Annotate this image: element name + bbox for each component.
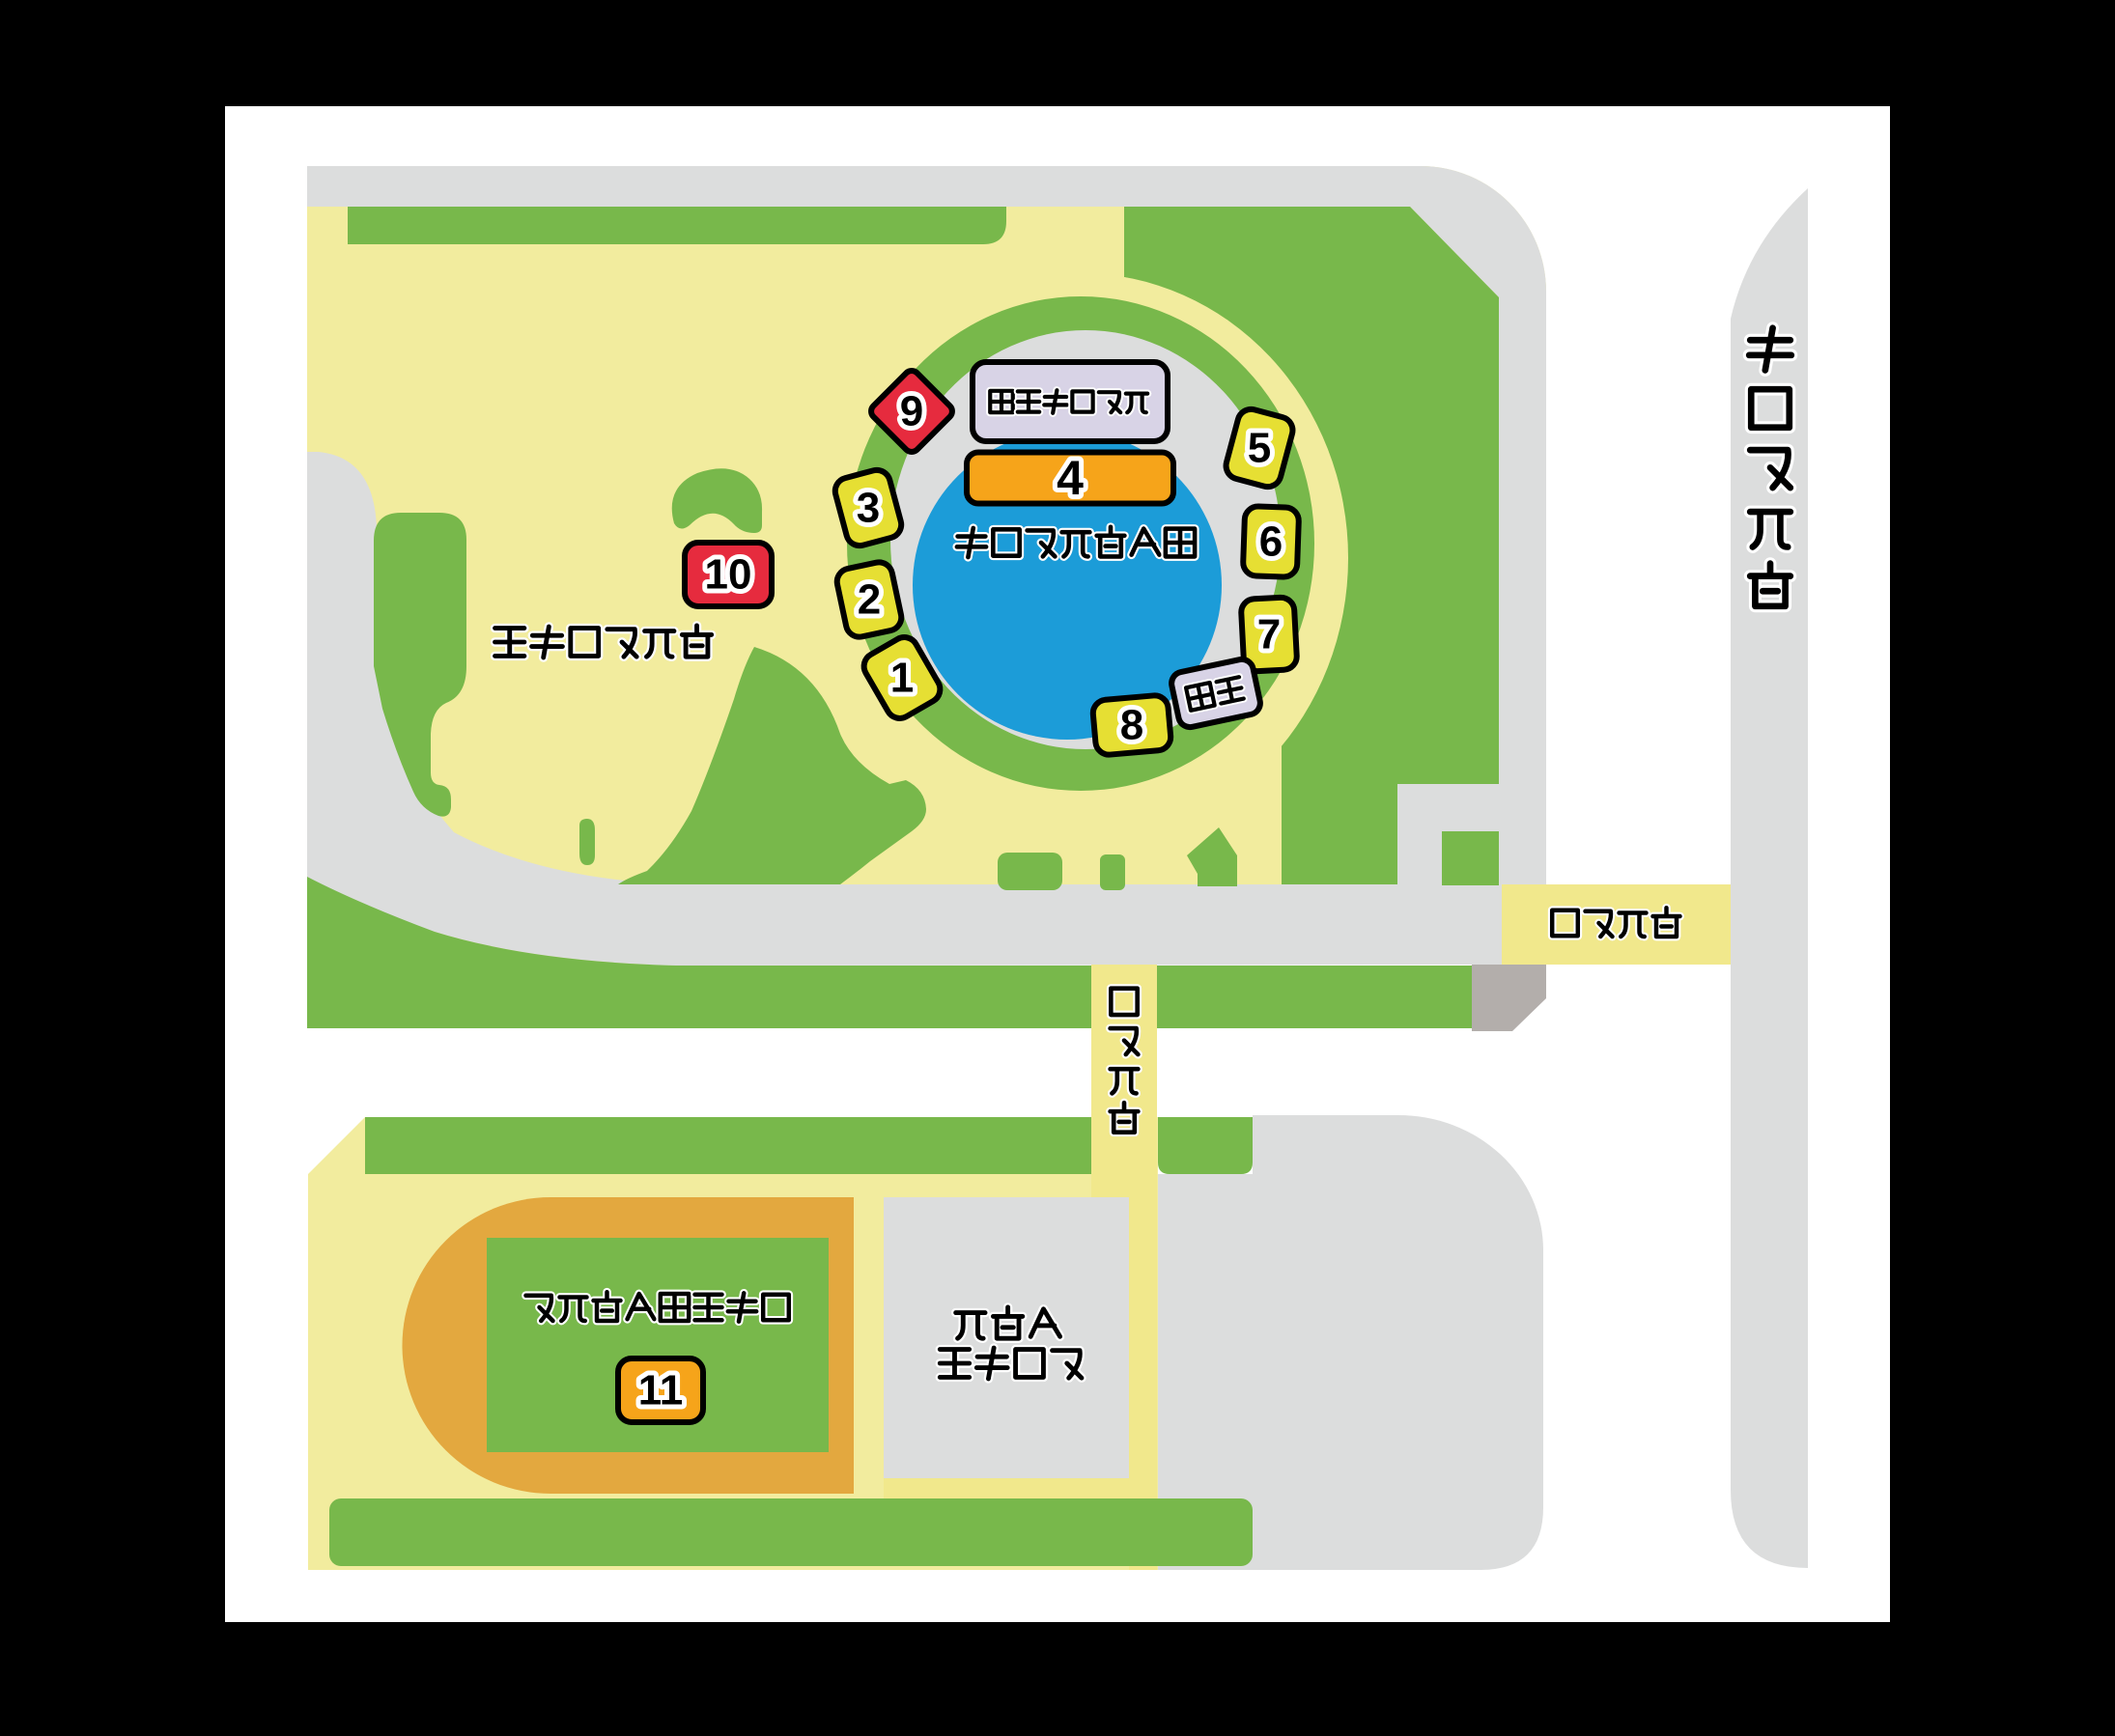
svg-text:6: 6 xyxy=(1259,518,1283,566)
svg-text:2: 2 xyxy=(858,576,881,624)
svg-text:7: 7 xyxy=(1257,611,1281,658)
svg-text:9: 9 xyxy=(900,388,923,435)
svg-text:10: 10 xyxy=(705,551,752,599)
svg-text:1: 1 xyxy=(890,655,914,702)
svg-text:3: 3 xyxy=(857,485,880,532)
svg-text:11: 11 xyxy=(638,1367,684,1414)
svg-text:4: 4 xyxy=(1057,451,1084,505)
svg-text:5: 5 xyxy=(1248,425,1271,472)
svg-text:8: 8 xyxy=(1120,702,1143,749)
